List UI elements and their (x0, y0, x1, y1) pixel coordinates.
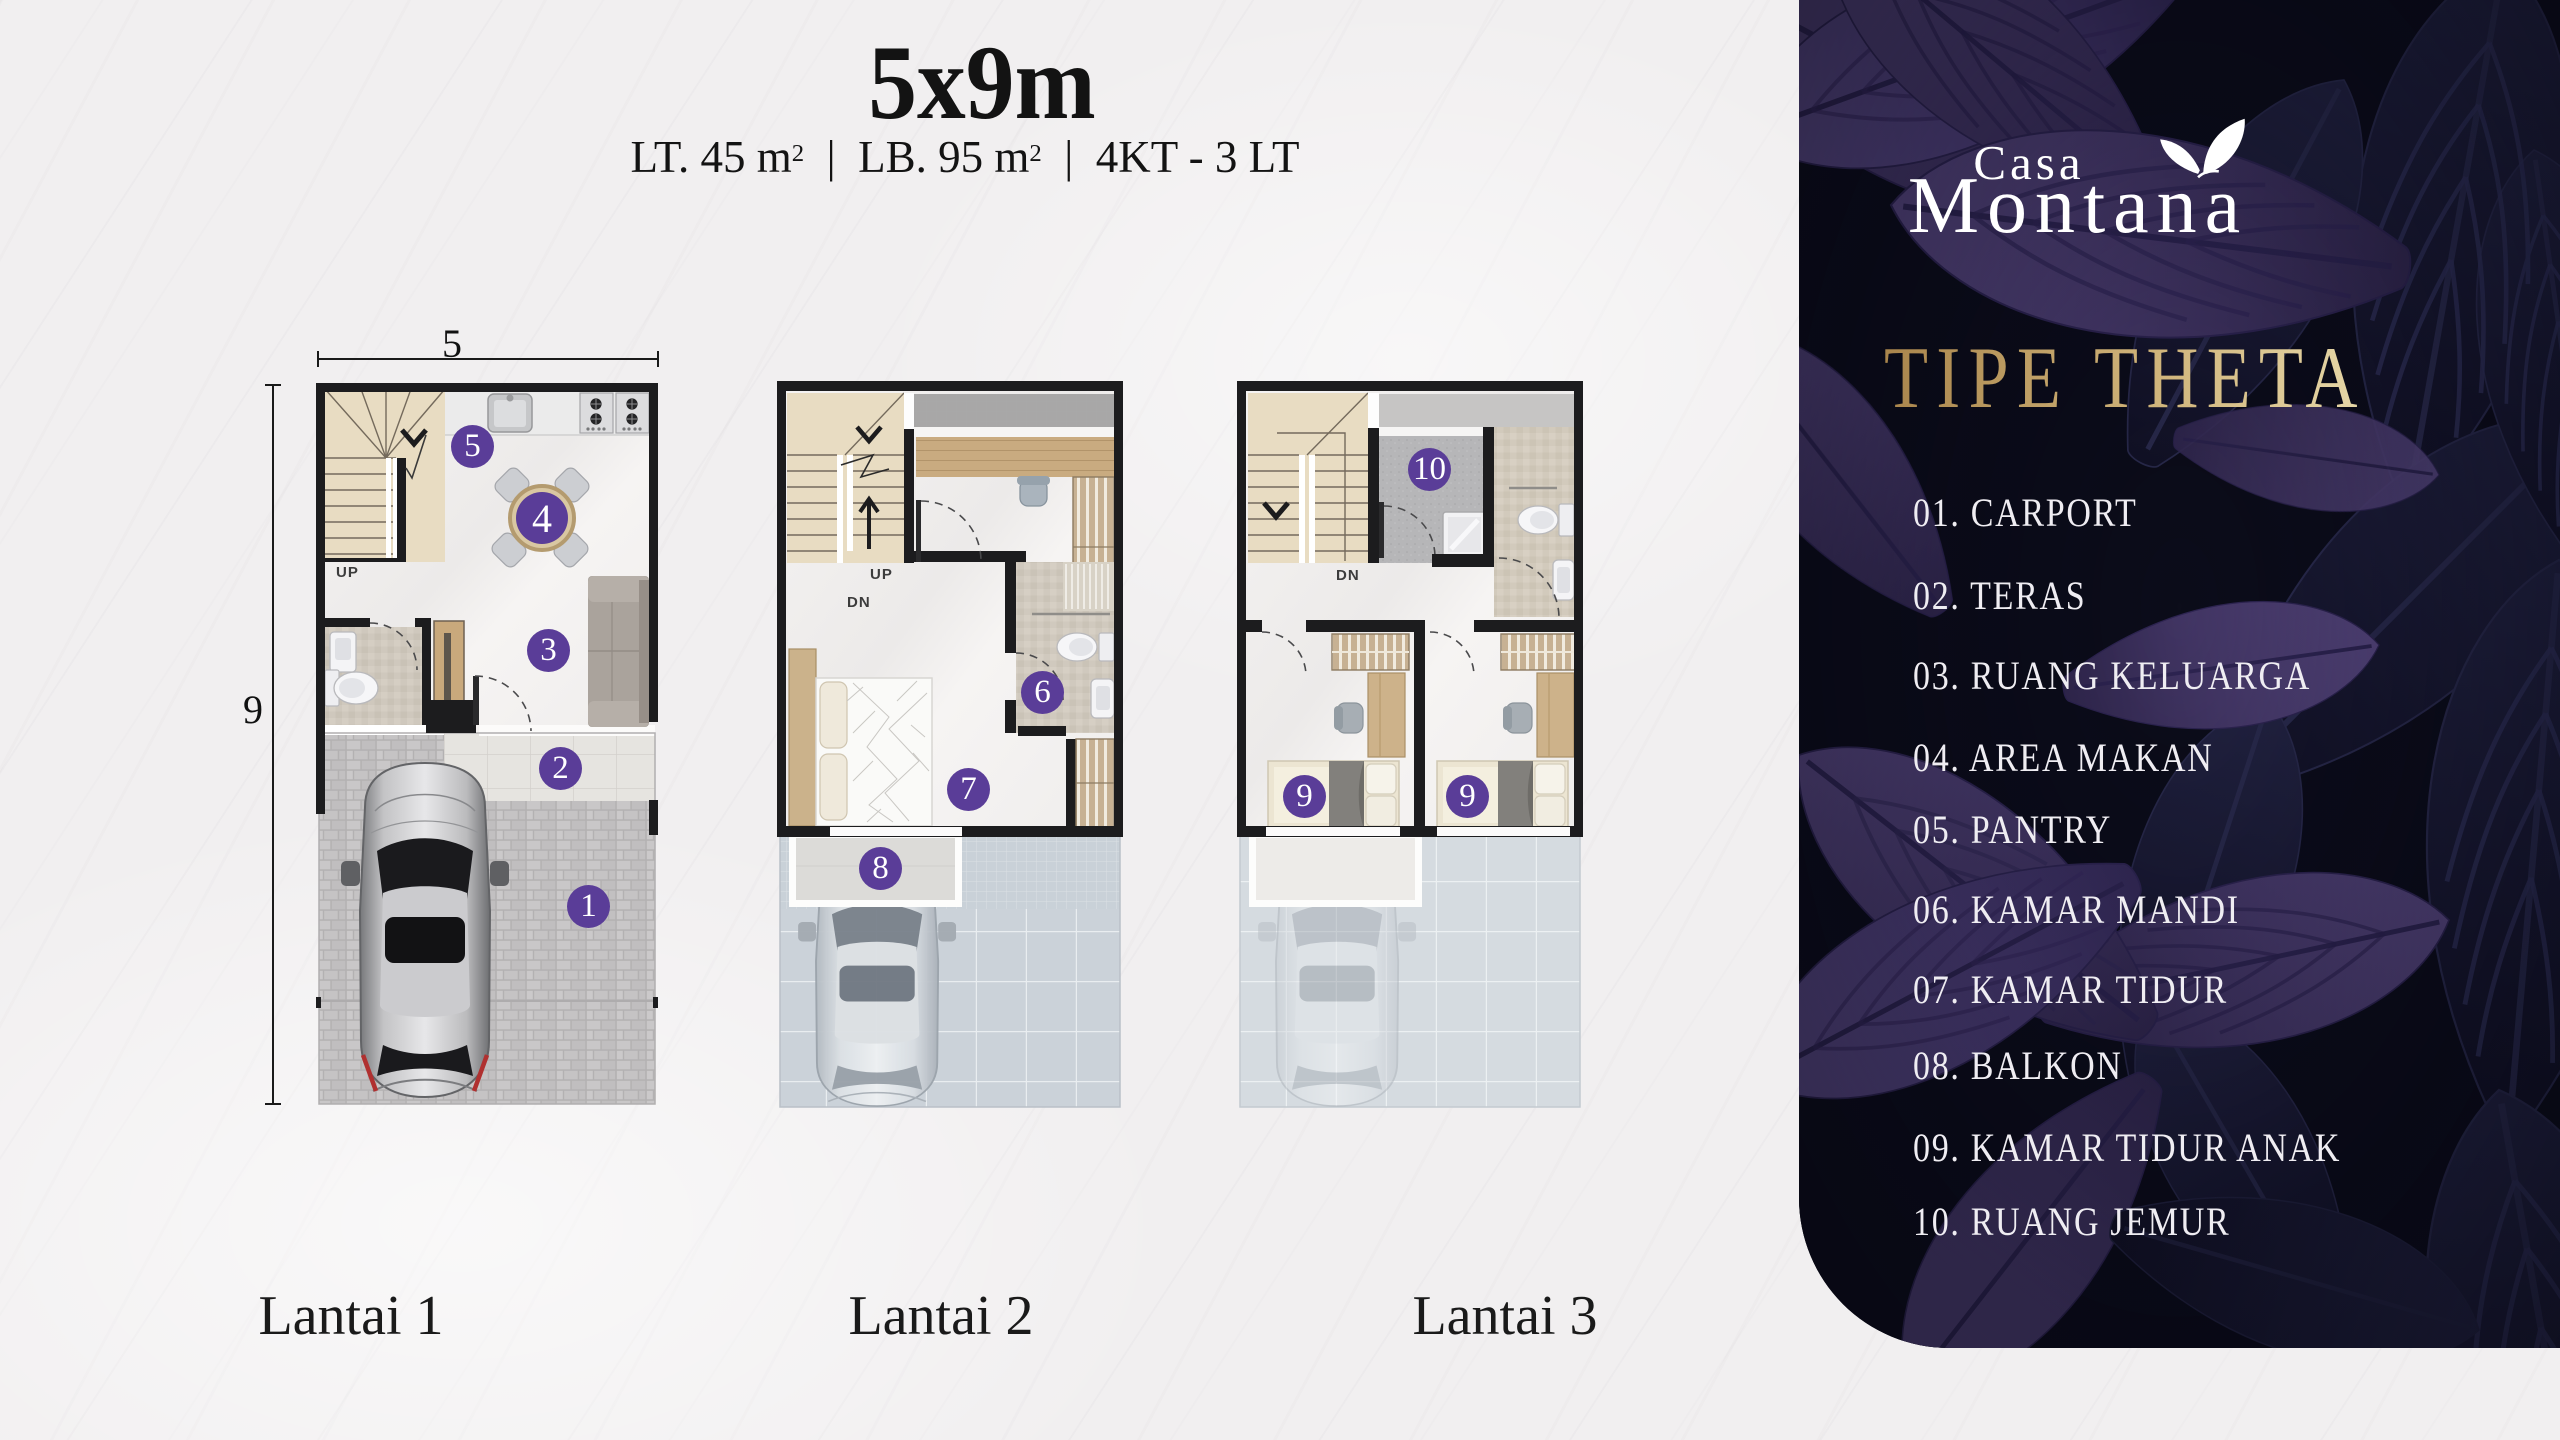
svg-text:DN: DN (1336, 567, 1360, 584)
svg-text:DN: DN (847, 594, 871, 611)
svg-text:UP: UP (336, 564, 359, 581)
svg-text:UP: UP (870, 566, 893, 583)
